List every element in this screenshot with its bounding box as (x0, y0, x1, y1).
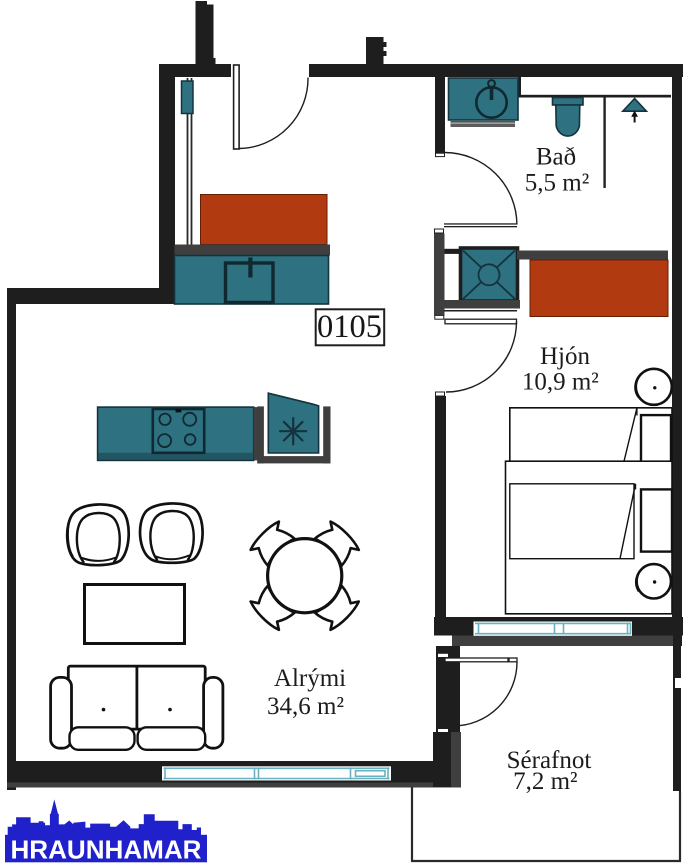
svg-text:10,9 m²: 10,9 m² (522, 369, 599, 396)
svg-text:Bað: Bað (536, 144, 576, 171)
svg-text:34,6 m²: 34,6 m² (267, 693, 344, 720)
svg-text:Hjón: Hjón (540, 343, 591, 370)
svg-text:0105: 0105 (317, 309, 382, 345)
svg-text:HRAUNHAMAR: HRAUNHAMAR (11, 835, 202, 865)
svg-text:Alrými: Alrými (274, 665, 346, 692)
svg-text:7,2 m²: 7,2 m² (513, 768, 577, 795)
svg-text:5,5 m²: 5,5 m² (525, 170, 589, 197)
